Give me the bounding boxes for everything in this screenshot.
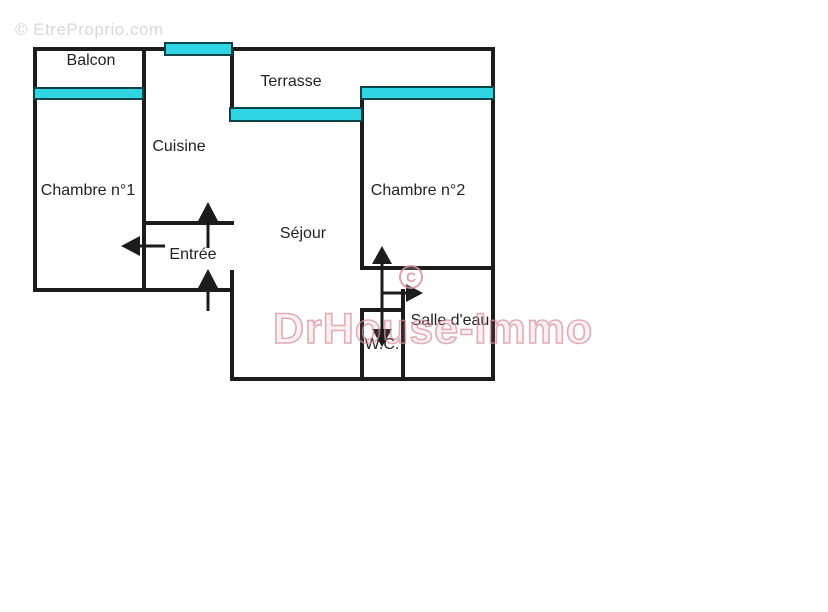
apartment-floor-plan: Balcon Terrasse Cuisine Chambre n°1 Cham… bbox=[0, 0, 828, 612]
copyright-icon: C bbox=[399, 265, 423, 289]
door-arrow-main-entrance-icon bbox=[198, 269, 218, 311]
watermark-drhouse-immo: DrHouse-Immo bbox=[273, 305, 593, 354]
room-label-chambre2: Chambre n°2 bbox=[362, 181, 474, 201]
room-label-sejour: Séjour bbox=[268, 224, 338, 244]
door-arrow-entree-to-chambre1-icon bbox=[121, 236, 165, 256]
floor-plan-image: Balcon Terrasse Cuisine Chambre n°1 Cham… bbox=[0, 0, 828, 612]
watermark-etreproprio: © EtreProprio.com bbox=[15, 20, 164, 40]
door-arrow-entree-to-cuisine-icon bbox=[198, 202, 218, 248]
room-label-chambre1: Chambre n°1 bbox=[34, 181, 142, 201]
room-label-cuisine: Cuisine bbox=[146, 137, 212, 157]
room-label-balcon: Balcon bbox=[38, 51, 144, 71]
room-label-terrasse: Terrasse bbox=[232, 72, 350, 92]
room-label-entree: Entrée bbox=[162, 245, 224, 265]
